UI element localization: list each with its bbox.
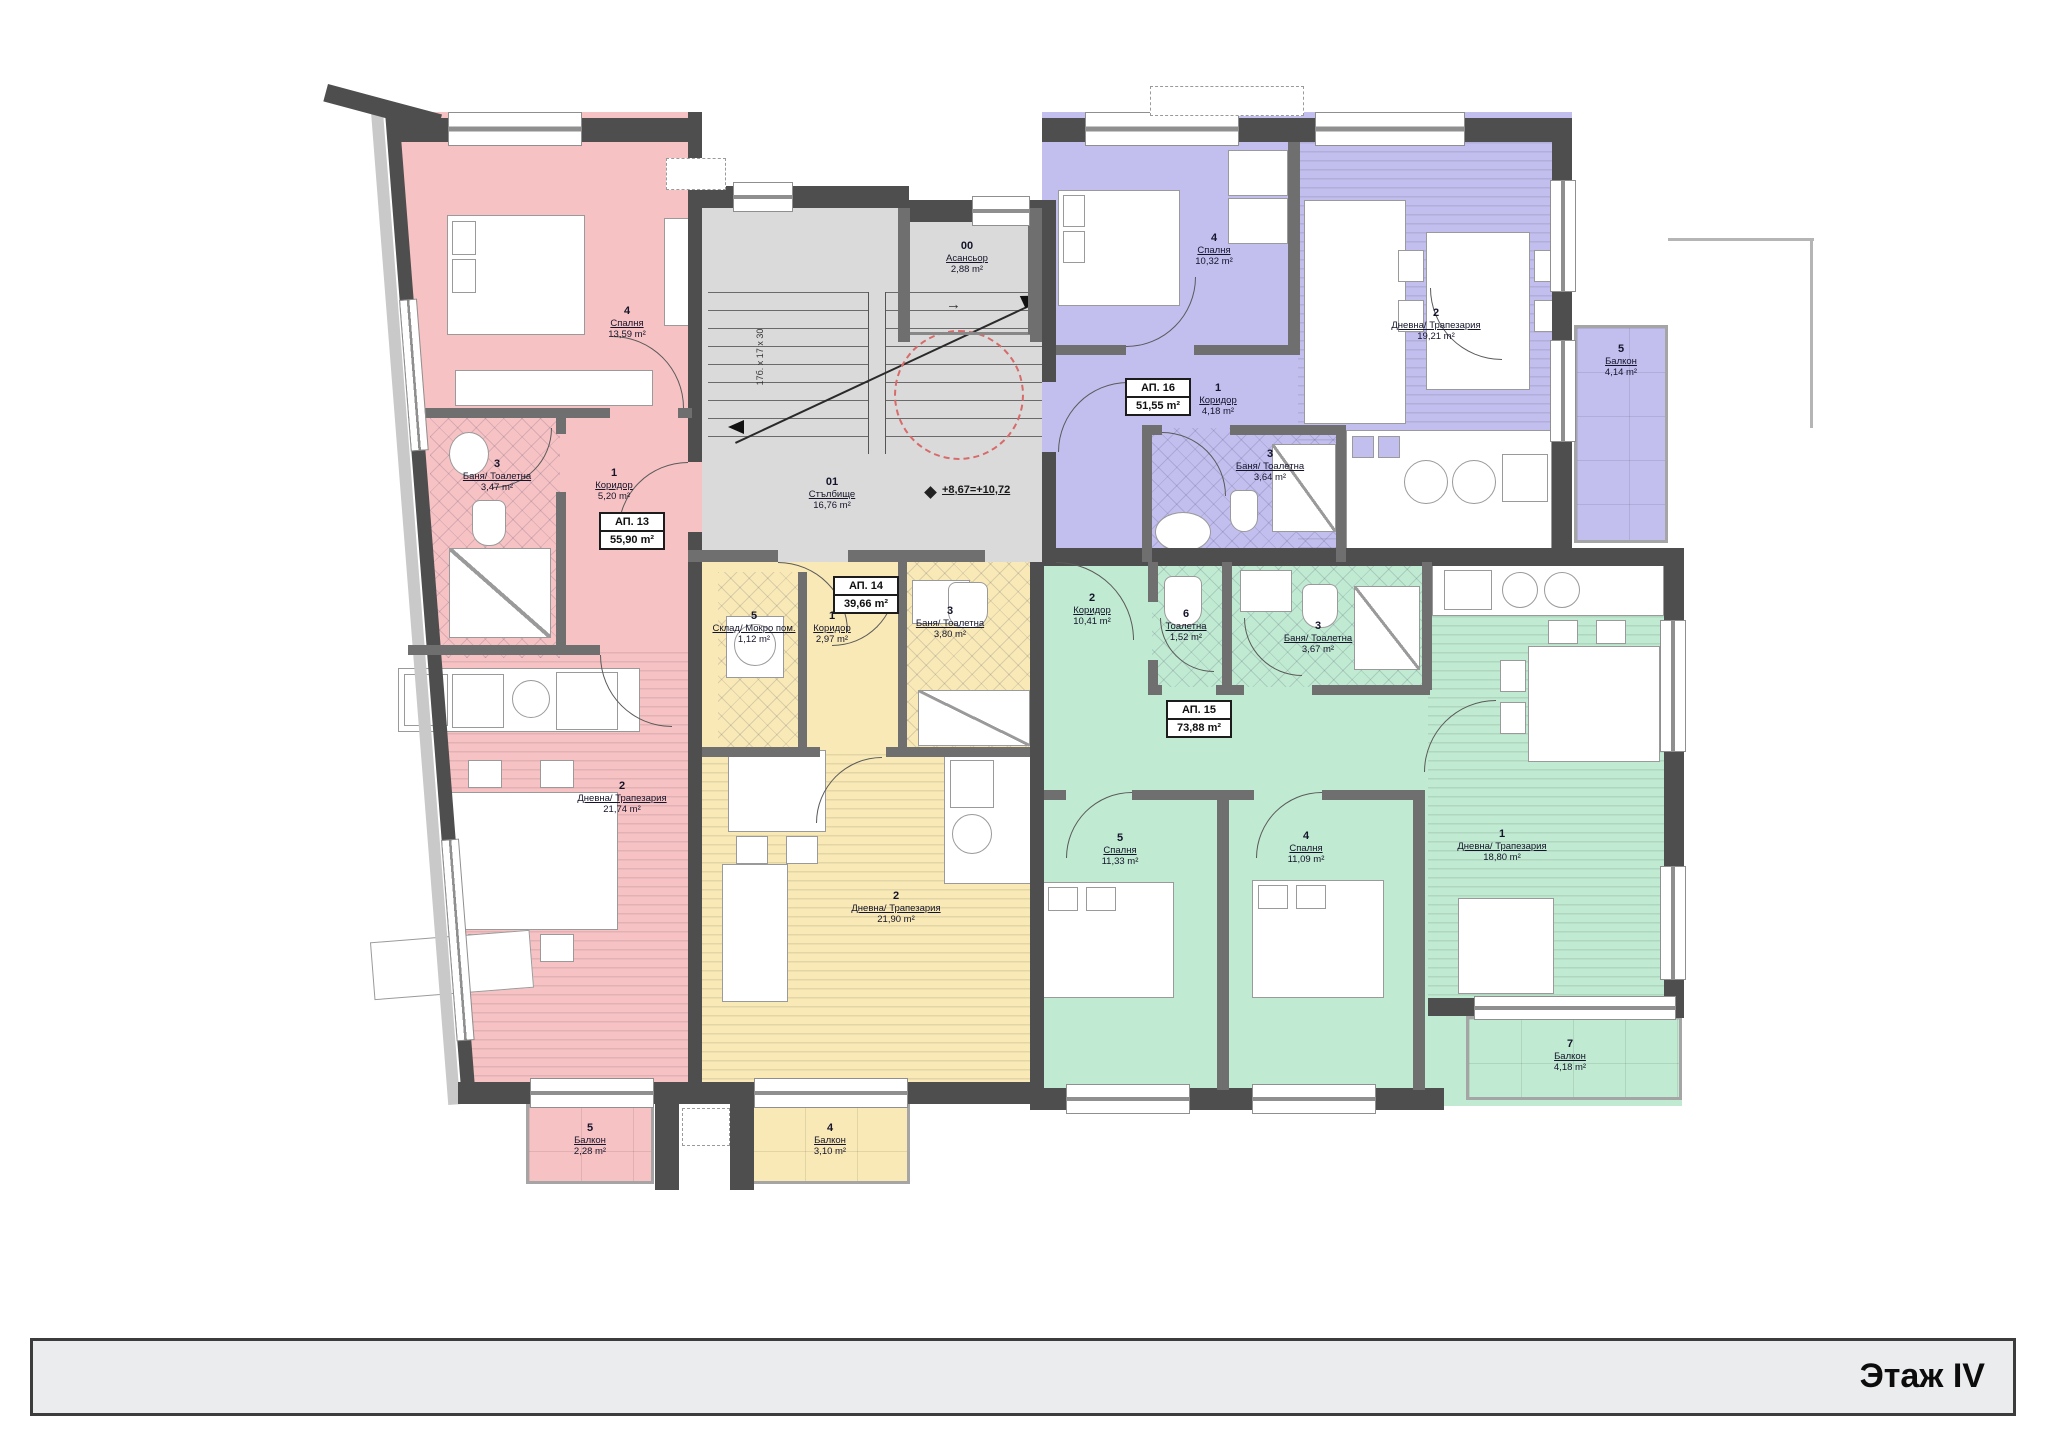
- fridge: [1502, 454, 1548, 502]
- room-label-ap13-bath: 3Баня/ Тоалетна3,47 m²: [431, 458, 563, 493]
- elevator-door-line: [910, 332, 1030, 335]
- kitchen-sink: [1404, 460, 1448, 504]
- chair: [468, 760, 502, 788]
- sofa: [1458, 898, 1554, 994]
- pillow: [452, 221, 476, 255]
- pillow: [452, 259, 476, 293]
- apartment-id: АП. 16: [1127, 380, 1189, 398]
- sink: [1240, 570, 1292, 612]
- room-label-ap15-bedroom5: 5Спалня11,33 m²: [1054, 832, 1186, 867]
- room-label-ap14-balcony: 4Балкон3,10 m²: [764, 1122, 896, 1157]
- room-label-stairwell: 01Стълбище16,76 m²: [766, 476, 898, 511]
- floor-title: Этаж IV: [1860, 1341, 1985, 1411]
- dashed-outline: [666, 158, 726, 190]
- window: [448, 112, 582, 146]
- wall: [1030, 328, 1042, 342]
- wall: [1312, 685, 1430, 695]
- wall: [1322, 790, 1422, 800]
- dashed-outline: [1150, 86, 1304, 116]
- apartment-box-ap16: АП. 16 51,55 m²: [1125, 378, 1191, 416]
- chair: [786, 836, 818, 864]
- sofa: [722, 864, 788, 1002]
- wall: [1288, 142, 1300, 355]
- apartment-id: АП. 14: [835, 578, 897, 596]
- window: [1066, 1084, 1190, 1114]
- wall: [1132, 790, 1254, 800]
- room-label-ap13-bedroom: 4Спалня13,59 m²: [561, 305, 693, 340]
- apartment-id: АП. 13: [601, 514, 663, 532]
- sink: [1155, 512, 1211, 552]
- wall: [1056, 345, 1126, 355]
- title-block: Этаж IV: [30, 1338, 2016, 1416]
- wall: [408, 645, 600, 655]
- chair: [1500, 702, 1526, 734]
- chair: [1398, 250, 1424, 282]
- room-label-ap16-balcony: 5Балкон4,14 m²: [1555, 343, 1687, 378]
- apartment-area: 55,90 m²: [601, 532, 663, 548]
- wall: [898, 562, 907, 750]
- window: [1085, 112, 1239, 146]
- balcony-pier: [655, 1094, 679, 1190]
- wall: [1042, 452, 1056, 562]
- wall: [1030, 562, 1044, 1088]
- apartment-box-ap13: АП. 13 55,90 m²: [599, 512, 665, 550]
- kitchen-sink: [1544, 572, 1580, 608]
- apartment-area: 39,66 m²: [835, 596, 897, 612]
- stair-dimension-note: 17б. x 17 x 30: [755, 309, 765, 405]
- stove-burner: [1452, 460, 1496, 504]
- room-label-ap14-living: 2Дневна/ Трапезария21,90 m²: [830, 890, 962, 925]
- window: [1315, 112, 1465, 146]
- wall: [1217, 795, 1229, 1090]
- stair-radius-annotation: [894, 330, 1024, 460]
- pillow: [1063, 231, 1085, 263]
- wardrobe: [1228, 150, 1288, 196]
- window: [1474, 996, 1676, 1020]
- wall: [1413, 790, 1425, 1090]
- pillow: [1296, 885, 1326, 909]
- apartment-id: АП. 15: [1168, 702, 1230, 720]
- wall: [1148, 685, 1162, 695]
- wall: [1422, 562, 1432, 690]
- stair-arrow-down-icon: [728, 420, 744, 434]
- room-label-ap16-bedroom: 4Спалня10,32 m²: [1148, 232, 1280, 267]
- chair: [1500, 660, 1526, 692]
- window: [1550, 180, 1576, 292]
- kitchen-sink: [952, 814, 992, 854]
- counter-module: [1352, 436, 1374, 458]
- room-label-ap15-toilet: 6Тоалетна1,52 m²: [1120, 608, 1252, 643]
- dining-table: [728, 750, 826, 832]
- room-label-ap13-living: 2Дневна/ Трапезария21,74 m²: [556, 780, 688, 815]
- shower: [449, 548, 551, 638]
- wall: [702, 747, 820, 757]
- window: [1660, 620, 1686, 752]
- neighbor-terrace-line: [1668, 238, 1814, 241]
- kitchen-sink: [1502, 572, 1538, 608]
- toilet: [1230, 490, 1258, 532]
- room-label-ap13-corridor: 1Коридор5,20 m²: [548, 467, 680, 502]
- dining-table: [1528, 646, 1660, 762]
- room-label-ap14-bath: 3Баня/ Тоалетна3,80 m²: [884, 605, 1016, 640]
- stove: [452, 674, 504, 728]
- wall: [848, 550, 985, 562]
- pillow: [1048, 887, 1078, 911]
- wall: [886, 747, 1030, 757]
- stove: [950, 760, 994, 808]
- room-label-ap16-bath: 3Баня/ Тоалетна3,64 m²: [1204, 448, 1336, 483]
- window: [1252, 1084, 1376, 1114]
- chair: [540, 934, 574, 962]
- apartment-box-ap15: АП. 15 73,88 m²: [1166, 700, 1232, 738]
- wall: [1042, 200, 1056, 382]
- wall: [1142, 425, 1152, 562]
- floor-plan: 17б. x 17 x 30 →: [0, 0, 2048, 1450]
- apartment-box-ap14: АП. 14 39,66 m²: [833, 576, 899, 614]
- counter-module: [1378, 436, 1400, 458]
- room-label-ap16-living: 2Дневна/ Трапезария19,21 m²: [1370, 307, 1502, 342]
- room-label-ap15-living: 1Дневна/ Трапезария18,80 m²: [1436, 828, 1568, 863]
- window: [972, 196, 1030, 226]
- room-label-elevator: 00Асансьор2,88 m²: [901, 240, 1033, 275]
- wall: [1230, 425, 1346, 435]
- window: [733, 182, 793, 212]
- room-label-ap13-balcony: 5Балкон2,28 m²: [524, 1122, 656, 1157]
- bathtub: [918, 690, 1030, 746]
- pillow: [1258, 885, 1288, 909]
- balcony-door: [1660, 866, 1686, 980]
- apartment-area: 51,55 m²: [1127, 398, 1189, 414]
- room-label-ap14-corridor: 1Коридор2,97 m²: [766, 610, 898, 645]
- balcony-door: [530, 1078, 654, 1108]
- wall: [408, 408, 610, 418]
- dashed-outline: [682, 1108, 730, 1146]
- toilet: [472, 500, 506, 546]
- chair: [1548, 620, 1578, 644]
- room-label-ap15-bedroom4: 4Спалня11,09 m²: [1240, 830, 1372, 865]
- wall: [556, 418, 566, 434]
- pillow: [1086, 887, 1116, 911]
- level-mark: +8,67=+10,72: [942, 484, 1010, 496]
- wall: [1042, 548, 1684, 566]
- wall: [1044, 790, 1066, 800]
- elevator-arrow-icon: →: [946, 296, 961, 313]
- pillow: [1063, 195, 1085, 227]
- wall: [695, 186, 909, 208]
- wall: [678, 408, 692, 418]
- room-label-ap15-bath: 3Баня/ Тоалетна3,67 m²: [1252, 620, 1384, 655]
- chair: [736, 836, 768, 864]
- kitchen-sink: [512, 680, 550, 718]
- apartment-area: 73,88 m²: [1168, 720, 1230, 736]
- wall: [688, 550, 778, 562]
- neighbor-terrace-line: [1810, 238, 1813, 428]
- wall: [1336, 425, 1346, 562]
- balcony-door: [754, 1078, 908, 1108]
- balcony-pier: [730, 1094, 754, 1190]
- wall: [556, 492, 566, 652]
- wall: [1194, 345, 1291, 355]
- stove: [1444, 570, 1492, 610]
- wall: [1216, 685, 1244, 695]
- room-label-ap15-balcony: 7Балкон4,18 m²: [1504, 1038, 1636, 1073]
- chair: [1596, 620, 1626, 644]
- wall: [898, 328, 910, 342]
